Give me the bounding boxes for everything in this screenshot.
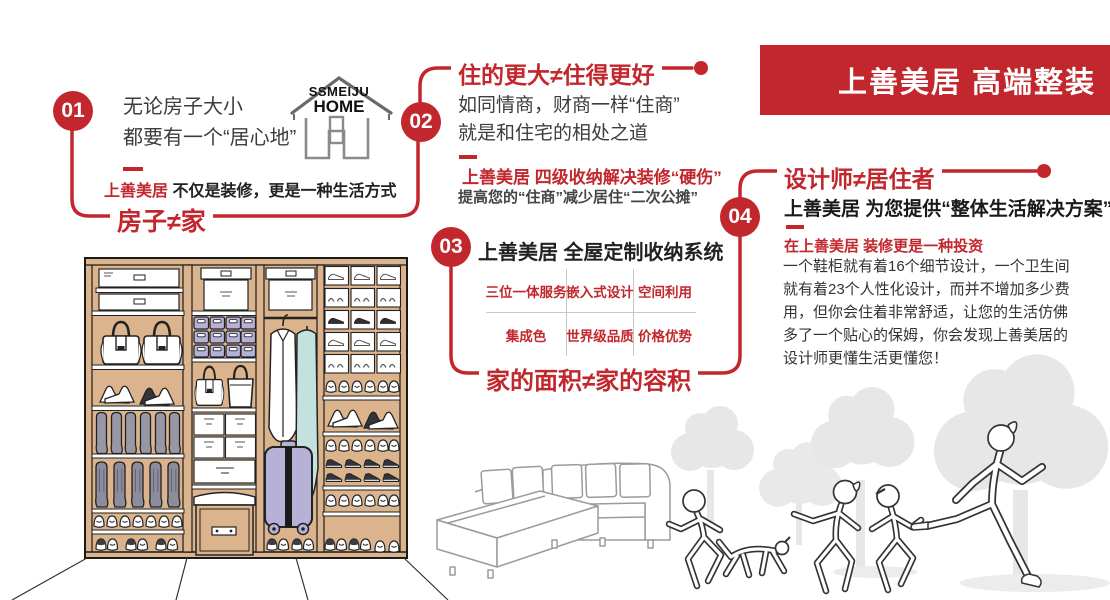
feature-cell: 集成色 [486, 313, 566, 356]
feature-cell: 三位一体服务 [486, 269, 566, 312]
s1-line1: 无论房子大小 [123, 92, 296, 123]
wardrobe-col2 [192, 268, 256, 555]
infographic-page: 上善美居 高端整装 01 无论房子大小 都要有一个“居心地” SSMEIJU H… [0, 0, 1110, 600]
step-circle-03: 03 [431, 227, 471, 267]
s2-note: 提高您的“住商”减少居住“二次公摊” [458, 186, 698, 207]
red-dash [459, 155, 477, 159]
s2-line2: 就是和住宅的相处之道 [458, 120, 680, 148]
red-dash [123, 167, 143, 171]
s1-tagline: 房子≠家 [110, 200, 213, 240]
step-circle-02: 02 [401, 102, 441, 142]
suitcase [265, 441, 312, 535]
s2-line1: 如同情商，财商一样“住商” [458, 92, 680, 120]
wardrobe-col3 [264, 268, 318, 550]
s4-heading: 设计师≠居住者 [777, 158, 942, 196]
s2-highlight: 上善美居 四级收纳解决装修“硬伤” [462, 163, 722, 188]
family-silhouettes [669, 354, 1110, 592]
feature-cell: 空间利用 [633, 269, 696, 312]
running-dog [719, 537, 790, 575]
s4-promise: 上善美居 为您提供“整体生活解决方案” [784, 194, 1110, 221]
step-circle-04: 04 [720, 197, 760, 237]
s1-brand-rest: 不仅是装修，更是一种生活方式 [172, 183, 396, 200]
logo-text-home: HOME [299, 97, 379, 117]
s4-paragraph: 一个鞋柜就有着16个细节设计，一个卫生间就有着23个人性化设计，而并不增加多少费… [783, 256, 1079, 371]
s1-brand: 上善美居 [104, 183, 168, 200]
s1-line2: 都要有一个“居心地” [123, 123, 296, 154]
line-end-dot [1037, 164, 1051, 178]
red-dash [786, 225, 804, 229]
feature-grid-row: 三位一体服务 嵌入式设计 空间利用 [486, 269, 696, 313]
brand-banner: 上善美居 高端整装 [760, 45, 1110, 115]
sofa-illustration [437, 463, 670, 578]
wardrobe-illustration [12, 258, 448, 600]
feature-cell: 嵌入式设计 [566, 269, 633, 312]
feature-cell: 价格优势 [633, 313, 696, 356]
feature-grid: 三位一体服务 嵌入式设计 空间利用 集成色 世界级品质 价格优势 [486, 269, 696, 356]
feature-grid-row: 集成色 世界级品质 价格优势 [486, 313, 696, 356]
floor-lines [12, 558, 448, 600]
s2-text: 如同情商，财商一样“住商” 就是和住宅的相处之道 [458, 92, 680, 147]
s1-subline: 上善美居 不仅是装修，更是一种生活方式 [104, 177, 396, 201]
s3-tagline: 家的面积≠家的容积 [479, 359, 698, 398]
line-end-dot [694, 61, 708, 75]
s2-heading: 住的更大≠住得更好 [451, 54, 662, 92]
s3-heading: 上善美居 全屋定制收纳系统 [478, 236, 724, 265]
feature-cell: 世界级品质 [566, 313, 633, 356]
step-circle-01: 01 [53, 91, 93, 131]
hanging-jacket [269, 329, 297, 441]
s1-text: 无论房子大小 都要有一个“居心地” [123, 92, 296, 154]
s4-invest: 在上善美居 装修更是一种投资 [784, 235, 983, 256]
